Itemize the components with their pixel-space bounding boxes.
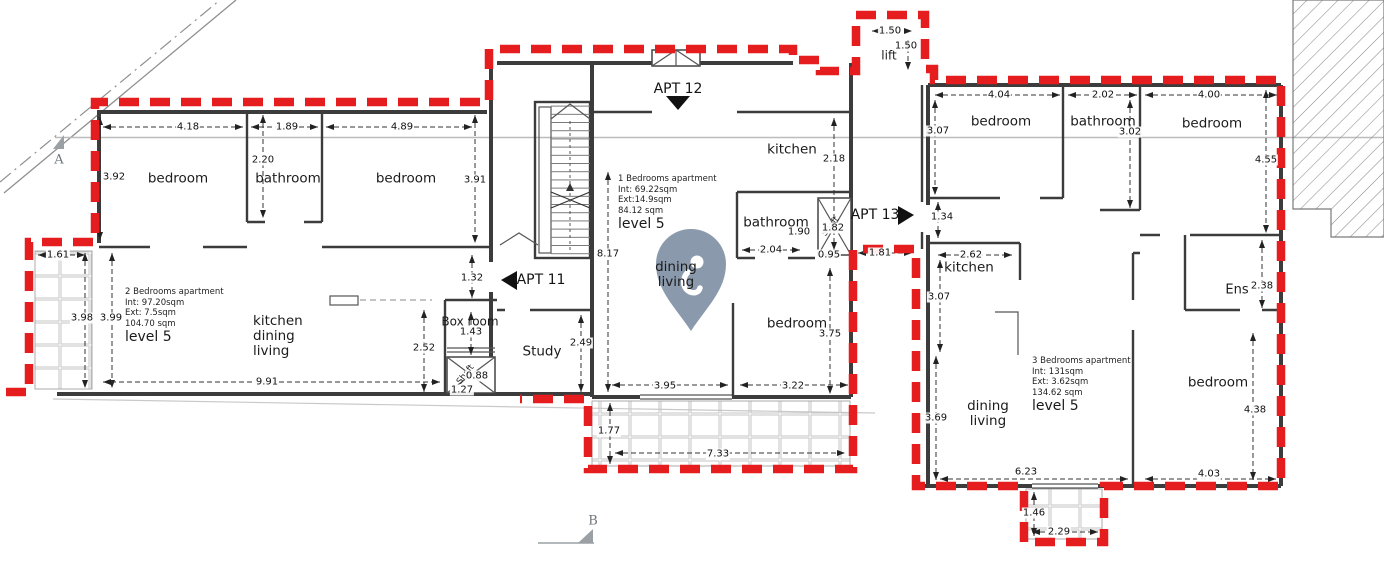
apartment-1bed-info-line: 1 Bedrooms apartment bbox=[618, 174, 717, 185]
dimension-label: 3.22 bbox=[781, 381, 805, 392]
dimension-label: 2.38 bbox=[1250, 281, 1274, 292]
room-label-bedroom-left-1: bedroom bbox=[148, 172, 208, 187]
room-label-dining-living-right: dining living bbox=[967, 399, 1009, 429]
dimension-label: 1.89 bbox=[275, 122, 299, 133]
apartment-3bed-info: 3 Bedrooms apartmentInt: 131sqmExt: 3.62… bbox=[1032, 356, 1131, 398]
dimension-label: 1.90 bbox=[787, 227, 811, 238]
dimension-label: 2.04 bbox=[759, 245, 783, 256]
section-marker-b: B bbox=[588, 514, 598, 529]
apt-13-arrow-icon bbox=[898, 206, 914, 225]
apt-11-label: APT 11 bbox=[517, 272, 566, 288]
room-label-bedroom-left-2: bedroom bbox=[376, 172, 436, 187]
dimension-label: 1.50 bbox=[878, 26, 902, 37]
dimension-label: 4.18 bbox=[176, 122, 200, 133]
dimension-label: 8.17 bbox=[596, 249, 620, 260]
neighbour-building-hatch bbox=[1293, 0, 1384, 237]
section-line-b bbox=[538, 529, 594, 543]
dimension-label: 4.55 bbox=[1254, 155, 1278, 166]
apartment-3bed-info-line: Int: 131sqm bbox=[1032, 367, 1131, 378]
dimension-label: 6.23 bbox=[1014, 467, 1038, 478]
dimension-label: 2.49 bbox=[569, 338, 593, 349]
apartment-1bed-info-line: Int: 69.22sqm bbox=[618, 185, 717, 196]
dimension-label: 0.95 bbox=[817, 250, 841, 261]
room-label-ens-right: Ens bbox=[1225, 283, 1248, 298]
apartment-2bed-info-line: 104.70 sqm bbox=[125, 319, 224, 330]
dimension-label: 4.00 bbox=[1197, 90, 1221, 101]
dimension-label: 9.91 bbox=[255, 377, 279, 388]
dimension-label: 3.99 bbox=[99, 313, 123, 324]
floor-plan-canvas: bedroombathroombedroomkitchen dining liv… bbox=[0, 0, 1384, 561]
dimension-label: 4.38 bbox=[1243, 405, 1267, 416]
dimension-label: 2.62 bbox=[959, 250, 983, 261]
dimension-label: 1.50 bbox=[894, 41, 918, 52]
dimension-label: 2.52 bbox=[412, 343, 436, 354]
dimension-label: 3.92 bbox=[102, 172, 126, 183]
stair-door-swing bbox=[500, 233, 538, 245]
dimension-label: 0.88 bbox=[465, 371, 489, 382]
dimension-label: 3.98 bbox=[70, 313, 94, 324]
dimension-label: 1.27 bbox=[450, 385, 474, 396]
room-label-kitchen-middle: kitchen bbox=[767, 143, 817, 158]
apartment-2bed-info-line: Ext: 7.5sqm bbox=[125, 308, 224, 319]
apartment-3bed-info-line: 134.62 sqm bbox=[1032, 388, 1131, 399]
apartment-1bed-info: 1 Bedrooms apartmentInt: 69.22sqmExt:14.… bbox=[618, 174, 717, 216]
room-label-bathroom-left: bathroom bbox=[255, 172, 321, 187]
room-label-bedroom-right-2: bedroom bbox=[1182, 117, 1242, 132]
dimension-label: 1.61 bbox=[46, 250, 70, 261]
apartment-1bed-level-label: level 5 bbox=[618, 219, 665, 230]
dimension-label: 4.04 bbox=[987, 90, 1011, 101]
apt-12-arrow-icon bbox=[666, 96, 690, 110]
dimension-label: 3.91 bbox=[463, 175, 487, 186]
dimension-label: 3.07 bbox=[926, 126, 950, 137]
dimension-label: 3.69 bbox=[924, 413, 948, 424]
dimension-label: 2.02 bbox=[1091, 90, 1115, 101]
dimension-label: 2.18 bbox=[822, 154, 846, 165]
dimension-label: 1.81 bbox=[868, 248, 892, 259]
dimension-label: 1.43 bbox=[459, 327, 483, 338]
dimension-label: 1.46 bbox=[1022, 508, 1046, 519]
apartment-3bed-level-label: level 5 bbox=[1032, 401, 1079, 412]
dimension-label: 1.34 bbox=[930, 212, 954, 223]
apt-11-arrow-icon bbox=[501, 271, 517, 290]
dimension-label: 7.33 bbox=[706, 449, 730, 460]
section-b-triangle-icon bbox=[578, 529, 593, 543]
room-label-kitchen-right: kitchen bbox=[944, 261, 994, 276]
apartment-3bed-info-line: Ext: 3.62sqm bbox=[1032, 377, 1131, 388]
site-boundary-lines bbox=[0, 0, 236, 193]
apt-12-label: APT 12 bbox=[654, 81, 703, 97]
apartment-2bed-info: 2 Bedrooms apartmentInt: 97.20sqmExt: 7.… bbox=[125, 287, 224, 329]
dimension-label: 4.89 bbox=[390, 122, 414, 133]
section-line-a bbox=[53, 135, 1384, 149]
dimension-label: 1.77 bbox=[597, 426, 621, 437]
apartment-1bed-info-line: Ext:14.9sqm bbox=[618, 195, 717, 206]
dimension-label: 3.07 bbox=[927, 292, 951, 303]
dimension-label: 1.82 bbox=[821, 223, 845, 234]
staircase bbox=[500, 102, 590, 258]
dimension-label: 4.03 bbox=[1197, 469, 1221, 480]
apartment-2bed-info-line: Int: 97.20sqm bbox=[125, 298, 224, 309]
dimension-label: 2.29 bbox=[1047, 527, 1071, 538]
dimension-label: 3.75 bbox=[818, 329, 842, 340]
apartment-2bed-info-line: 2 Bedrooms apartment bbox=[125, 287, 224, 298]
dimension-label: 2.20 bbox=[251, 155, 275, 166]
dimension-label: 1.32 bbox=[460, 273, 484, 284]
apartment-2bed-level-label: level 5 bbox=[125, 332, 172, 343]
room-label-kitchen-dining-living-left: kitchen dining living bbox=[253, 314, 303, 359]
dimension-label: 3.02 bbox=[1118, 127, 1142, 138]
room-label-dining-living-middle: dining living bbox=[655, 260, 697, 290]
room-label-bedroom-right-1: bedroom bbox=[971, 115, 1031, 130]
room-label-bedroom-right-3: bedroom bbox=[1188, 376, 1248, 391]
section-marker-a: A bbox=[54, 153, 63, 168]
room-label-study: Study bbox=[523, 345, 562, 360]
apt-13-label: APT 13 bbox=[851, 207, 900, 223]
apartment-1bed-info-line: 84.12 sqm bbox=[618, 206, 717, 217]
dimension-label: 3.95 bbox=[653, 381, 677, 392]
apartment-3bed-info-line: 3 Bedrooms apartment bbox=[1032, 356, 1131, 367]
